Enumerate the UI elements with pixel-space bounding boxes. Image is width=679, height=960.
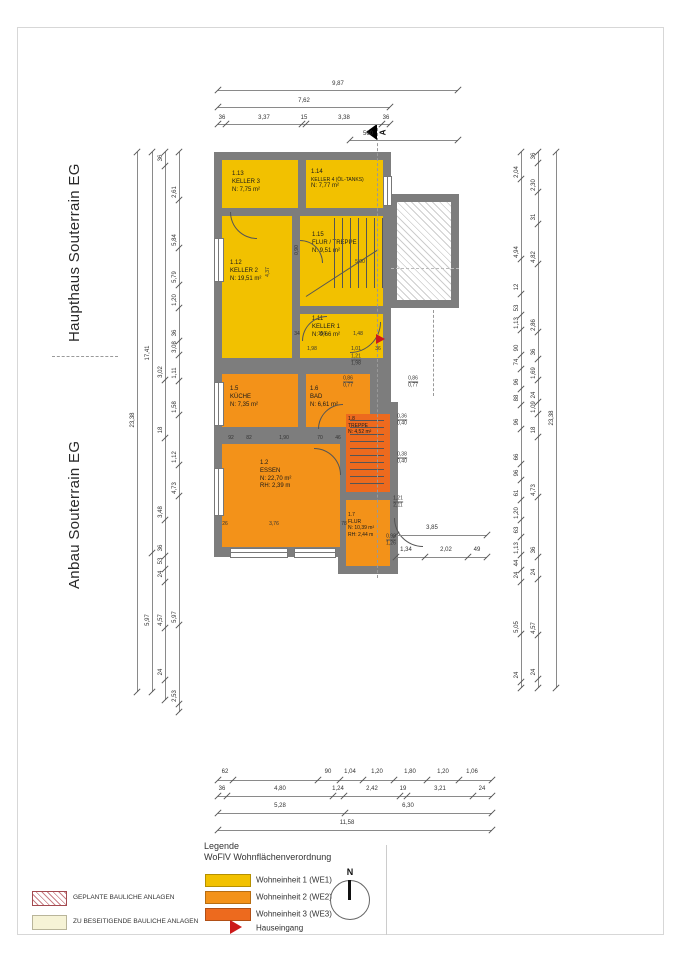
dim-label: 53 bbox=[514, 305, 520, 312]
dim-label: 18 bbox=[158, 427, 164, 434]
north-arrow-needle bbox=[348, 880, 351, 900]
dim-label: 49 bbox=[474, 547, 481, 553]
dim-tick bbox=[386, 103, 393, 110]
dim-label: 24 bbox=[531, 569, 537, 576]
stacked-dim-label: 1,212,11 bbox=[393, 496, 403, 509]
dim-label: 15 bbox=[301, 115, 308, 121]
dim-label: 4,80 bbox=[274, 786, 286, 792]
dim-line bbox=[538, 152, 539, 688]
dim-label: 19 bbox=[400, 786, 407, 792]
dim-label: 4,82 bbox=[531, 251, 537, 263]
dim-label: 3,08 bbox=[172, 341, 178, 353]
dimension-annotations: 9,877,62363,37153,383656062901,041,201,8… bbox=[0, 0, 679, 960]
stacked-dim-label: 0,860,77 bbox=[408, 376, 418, 389]
dim-label: 1,01 bbox=[351, 346, 361, 352]
dim-label: 3,21 bbox=[434, 786, 446, 792]
dim-label: 24 bbox=[158, 669, 164, 676]
dim-label: 63 bbox=[514, 527, 520, 534]
dim-label: 1,12 bbox=[172, 451, 178, 463]
dim-label: 12 bbox=[514, 284, 520, 291]
dim-label: 1,24 bbox=[332, 786, 344, 792]
dim-label: 5,28 bbox=[274, 803, 286, 809]
dim-label: 2,04 bbox=[514, 166, 520, 178]
legend-swatch-we1 bbox=[205, 874, 251, 887]
dim-label: 3,76 bbox=[269, 521, 279, 527]
dim-tick bbox=[488, 776, 495, 783]
dim-label: 36 bbox=[219, 115, 226, 121]
dim-label: 24 bbox=[531, 392, 537, 399]
dim-label: 3,37 bbox=[258, 115, 270, 121]
stacked-dim-label: 0,981,26 bbox=[386, 534, 396, 547]
entrance-arrow-legend bbox=[230, 920, 242, 934]
dim-label: 24 bbox=[158, 571, 164, 578]
legend-label-entrance: Hauseingang bbox=[256, 924, 303, 933]
dim-line bbox=[137, 152, 138, 692]
dim-line bbox=[556, 152, 557, 688]
dim-label: 2,02 bbox=[440, 547, 452, 553]
legend-subtitle: WoFlV Wohnflächenverordnung bbox=[204, 852, 331, 862]
legend-label-we1: Wohneinheit 1 (WE1) bbox=[256, 876, 332, 885]
dim-line bbox=[165, 152, 166, 700]
site-legend-remove-label: ZU BESEITIGENDE BAULICHE ANLAGEN bbox=[73, 918, 198, 925]
dim-label: 2,61 bbox=[172, 186, 178, 198]
dim-tick bbox=[488, 809, 495, 816]
dim-label: 26 bbox=[222, 521, 228, 527]
dim-label: 1,11 bbox=[172, 367, 178, 378]
dim-label: 9,87 bbox=[332, 81, 344, 87]
dim-label: 1,06 bbox=[466, 769, 478, 775]
dim-line bbox=[396, 535, 487, 536]
dim-label: 5,05 bbox=[514, 621, 520, 633]
dim-label: 1,09 bbox=[531, 401, 537, 413]
floor-plan-sheet: { "titles": { "haupthaus": "Haupthaus So… bbox=[0, 0, 679, 960]
dim-line bbox=[218, 830, 492, 831]
dim-label: 1,13 bbox=[514, 542, 520, 554]
dim-tick bbox=[454, 86, 461, 93]
dim-label: 3,38 bbox=[338, 115, 350, 121]
dim-line bbox=[218, 780, 492, 781]
dim-label: 36 bbox=[158, 545, 164, 552]
dim-tick bbox=[483, 531, 490, 538]
fold-line bbox=[386, 845, 387, 935]
dim-tick bbox=[175, 708, 182, 715]
dim-label: 24 bbox=[514, 672, 520, 679]
dim-label: 66 bbox=[514, 454, 520, 461]
site-legend-remove-swatch bbox=[32, 915, 67, 930]
dim-label: 560 bbox=[363, 131, 373, 137]
dim-label: 36 bbox=[219, 786, 226, 792]
dim-label: 18 bbox=[531, 427, 537, 434]
dim-label: 90 bbox=[325, 769, 332, 775]
dim-label: 36 bbox=[158, 155, 164, 162]
dim-label: 4,57 bbox=[158, 614, 164, 626]
stacked-dim-label: 0,360,40 bbox=[397, 414, 407, 427]
dim-line bbox=[218, 813, 492, 814]
dim-label: 61 bbox=[514, 490, 520, 497]
dim-label: 1,20 bbox=[514, 507, 520, 519]
dim-label: 36 bbox=[375, 346, 381, 352]
dim-label: 88 bbox=[514, 395, 520, 402]
dim-line bbox=[179, 152, 180, 712]
dim-label: 1,13 bbox=[514, 317, 520, 329]
dim-label: 1,20 bbox=[172, 294, 178, 306]
dim-line bbox=[521, 152, 522, 688]
site-legend-planned-label: GEPLANTE BAULICHE ANLAGEN bbox=[73, 894, 175, 901]
dim-label: 96 bbox=[514, 470, 520, 477]
dim-label: 2,86 bbox=[531, 319, 537, 331]
dim-tick bbox=[148, 688, 155, 695]
dim-label: 46 bbox=[335, 435, 341, 441]
legend-label-we2: Wohneinheit 2 (WE2) bbox=[256, 893, 332, 902]
dim-label: 5,97 bbox=[145, 614, 151, 626]
dim-label: 17,41 bbox=[145, 345, 151, 360]
legend-swatch-we2 bbox=[205, 891, 251, 904]
north-label: N bbox=[347, 867, 354, 877]
dim-label: 96 bbox=[514, 419, 520, 426]
dim-label: 90 bbox=[514, 345, 520, 352]
dim-tick bbox=[517, 684, 524, 691]
dim-label: 1,20 bbox=[371, 769, 383, 775]
dim-label: 5,00 bbox=[355, 259, 365, 265]
dim-label: 5,97 bbox=[172, 611, 178, 623]
dim-label: 2,30 bbox=[531, 179, 537, 191]
dim-label: 44 bbox=[514, 560, 520, 567]
dim-label: 3,85 bbox=[426, 525, 438, 531]
dim-label: 24 bbox=[479, 786, 486, 792]
dim-label: 3,02 bbox=[158, 366, 164, 378]
dim-tick bbox=[552, 684, 559, 691]
dim-label: 1,48 bbox=[353, 331, 363, 337]
legend-swatch-we3 bbox=[205, 908, 251, 921]
dim-label: 6,30 bbox=[402, 803, 414, 809]
dim-label: 0,90 bbox=[294, 245, 300, 255]
dim-label: 2,42 bbox=[366, 786, 378, 792]
stacked-dim-label: 0,380,40 bbox=[397, 452, 407, 465]
dim-label: 156 bbox=[318, 331, 326, 337]
dim-label: 53 bbox=[158, 558, 164, 565]
dim-label: 31 bbox=[531, 214, 537, 221]
dim-label: 4,94 bbox=[514, 246, 520, 258]
legend-label-we3: Wohneinheit 3 (WE3) bbox=[256, 910, 332, 919]
dim-label: 74 bbox=[514, 359, 520, 366]
dim-tick bbox=[534, 684, 541, 691]
stacked-dim-label: 1,211,98 bbox=[351, 354, 361, 367]
dim-tick bbox=[454, 136, 461, 143]
dim-tick bbox=[488, 826, 495, 833]
dim-line bbox=[350, 140, 458, 141]
dim-label: 1,20 bbox=[437, 769, 449, 775]
dim-line bbox=[152, 152, 153, 692]
dim-tick bbox=[386, 120, 393, 127]
dim-label: 23,38 bbox=[130, 412, 136, 427]
dim-line bbox=[396, 557, 487, 558]
dim-line bbox=[218, 90, 458, 91]
dim-label: 1,04 bbox=[344, 769, 356, 775]
stacked-dim-label: 0,860,77 bbox=[343, 376, 353, 389]
dim-tick bbox=[488, 792, 495, 799]
dim-label: 36 bbox=[172, 330, 178, 337]
dim-label: 62 bbox=[222, 769, 229, 775]
dim-label: 23,38 bbox=[549, 410, 555, 425]
dim-tick bbox=[483, 553, 490, 560]
dim-label: 34 bbox=[294, 331, 300, 337]
dim-label: 4,37 bbox=[265, 267, 271, 277]
dim-label: 78 bbox=[341, 521, 347, 527]
dim-label: 36 bbox=[531, 547, 537, 554]
dim-label: 1,69 bbox=[531, 367, 537, 379]
dim-label: 96 bbox=[514, 379, 520, 386]
dim-label: 36 bbox=[531, 349, 537, 356]
legend-title: Legende bbox=[204, 841, 239, 851]
dim-label: 24 bbox=[531, 669, 537, 676]
dim-label: 4,73 bbox=[531, 484, 537, 496]
dim-label: 36 bbox=[531, 153, 537, 160]
dim-line bbox=[218, 107, 390, 108]
dim-label: 2,53 bbox=[172, 690, 178, 702]
dim-label: 1,34 bbox=[400, 547, 412, 553]
dim-label: 1,80 bbox=[404, 769, 416, 775]
dim-tick bbox=[133, 688, 140, 695]
dim-label: 5,84 bbox=[172, 234, 178, 246]
dim-label: 7,62 bbox=[298, 98, 310, 104]
dim-label: 4,73 bbox=[172, 482, 178, 494]
dim-label: 1,90 bbox=[279, 435, 289, 441]
dim-label: 36 bbox=[383, 115, 390, 121]
dim-label: 3,48 bbox=[158, 506, 164, 518]
dim-label: 5,79 bbox=[172, 271, 178, 283]
dim-label: 24 bbox=[514, 572, 520, 579]
dim-label: 1,98 bbox=[307, 346, 317, 352]
dim-label: 4,57 bbox=[531, 622, 537, 634]
dim-label: 1,58 bbox=[172, 401, 178, 413]
dim-label: 11,58 bbox=[340, 820, 355, 826]
dim-label: 82 bbox=[246, 435, 252, 441]
dim-tick bbox=[161, 696, 168, 703]
site-legend-planned-swatch bbox=[32, 891, 67, 906]
dim-label: 92 bbox=[228, 435, 234, 441]
dim-line bbox=[218, 796, 492, 797]
dim-label: 70 bbox=[317, 435, 323, 441]
